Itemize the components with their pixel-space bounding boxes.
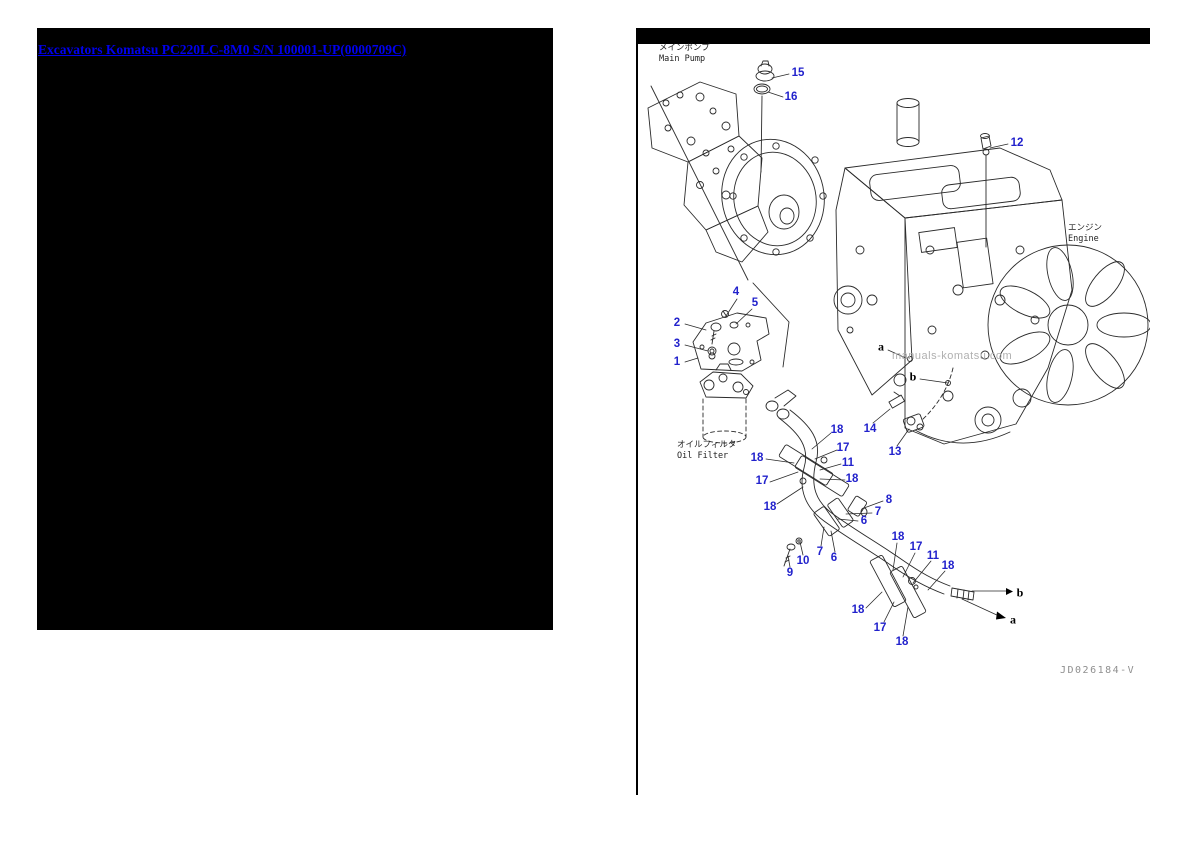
screen: Excavators Komatsu PC220LC-8M0 S/N 10000… xyxy=(0,0,1190,842)
left-panel: Excavators Komatsu PC220LC-8M0 S/N 10000… xyxy=(37,28,553,630)
hose-drawing xyxy=(766,390,974,618)
oil-filter-label: オイルフィルタ Oil Filter xyxy=(677,440,736,462)
fan-drawing xyxy=(988,245,1150,405)
oil-filter-drawing xyxy=(700,364,753,443)
oil-filter-label-en: Oil Filter xyxy=(677,451,736,462)
watermark: manuals-komatsu.com xyxy=(892,350,1012,362)
bracket-drawing xyxy=(693,311,769,372)
oil-filter-label-jp: オイルフィルタ xyxy=(677,440,736,451)
main-pump-drawing xyxy=(648,82,835,367)
main-pump-label: メインポンプ Main Pump xyxy=(659,43,710,65)
engine-label: エンジン Engine xyxy=(1068,223,1102,245)
main-pump-label-en: Main Pump xyxy=(659,54,710,65)
engine-label-jp: エンジン xyxy=(1068,223,1102,234)
catalog-link[interactable]: Excavators Komatsu PC220LC-8M0 S/N 10000… xyxy=(38,42,406,58)
engine-drawing xyxy=(834,99,1072,445)
parts-diagram xyxy=(636,28,1150,798)
direction-arrows xyxy=(996,588,1013,620)
drawing-number: JD026184-V xyxy=(1060,665,1135,676)
main-pump-label-jp: メインポンプ xyxy=(659,43,710,54)
engine-label-en: Engine xyxy=(1068,234,1102,245)
